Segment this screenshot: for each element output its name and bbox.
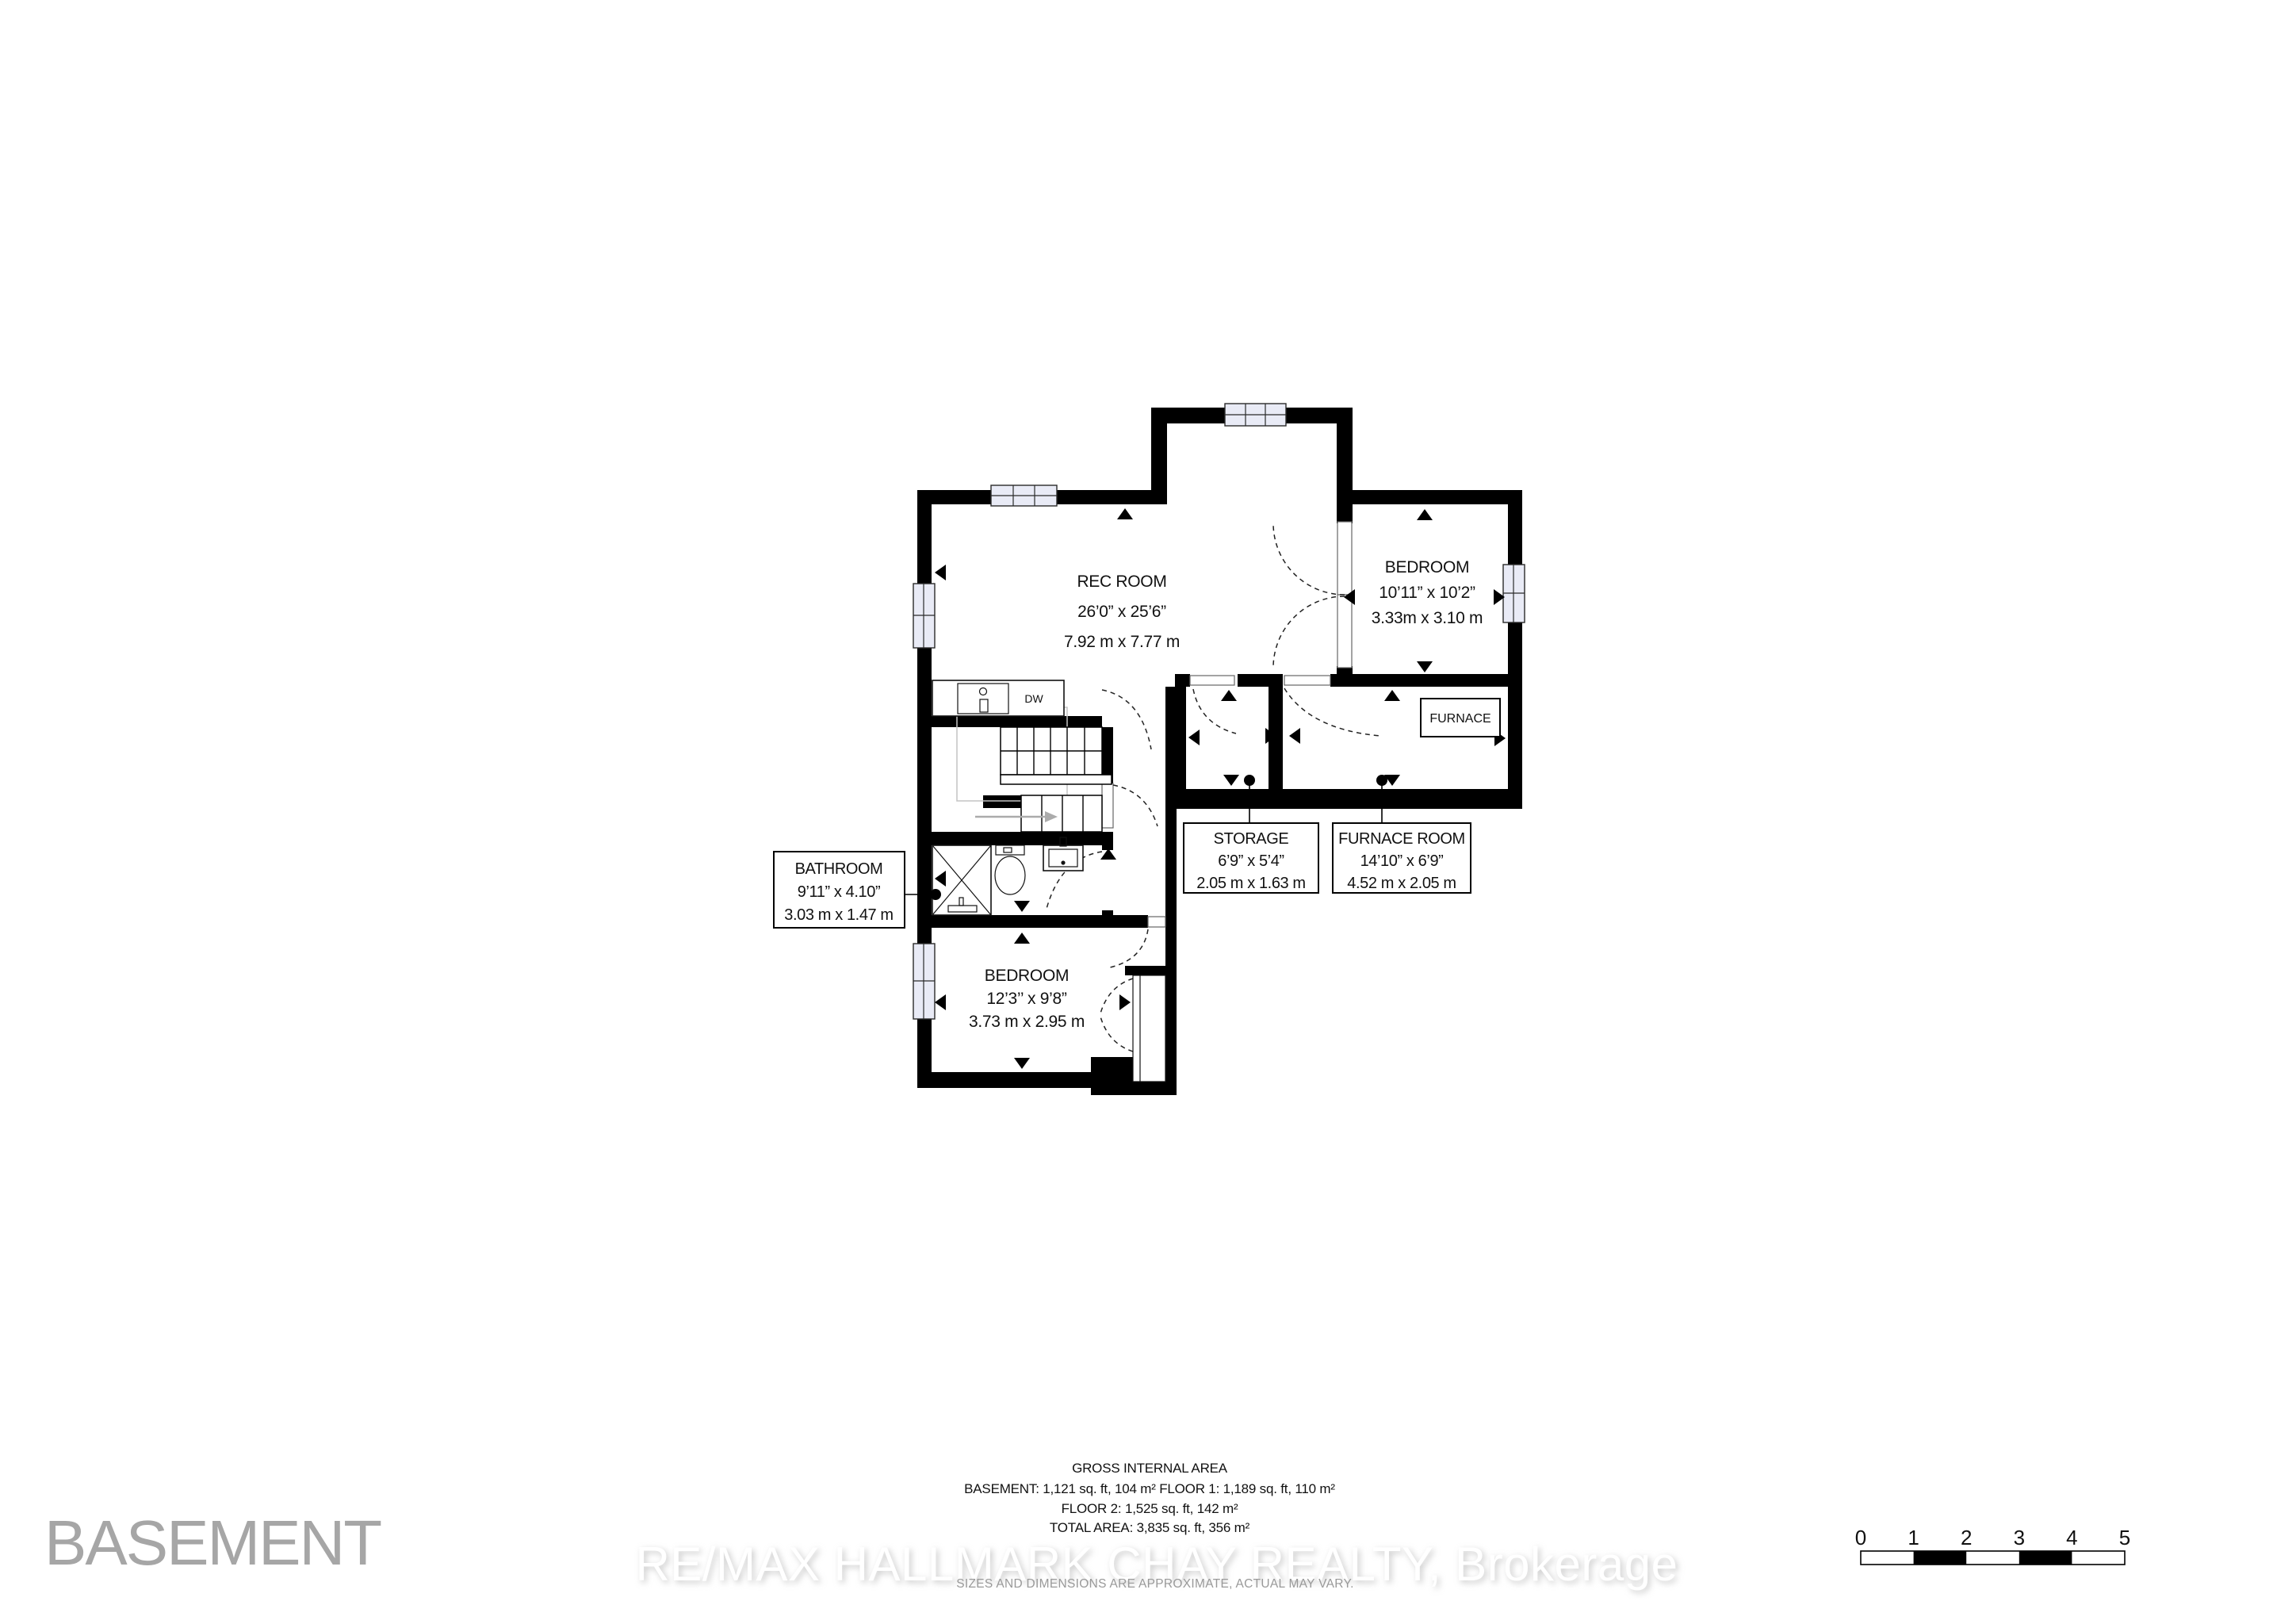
window-rec-left	[913, 584, 935, 648]
window-bedroom-upper-right	[1503, 565, 1525, 622]
arrow-storage-left	[1188, 730, 1200, 745]
label-boxes: FURNACE STORAGE 6’9” x 5’4” 2.05 m x 1.6…	[774, 699, 1500, 928]
wall-rec-bedroom-lower-seg	[1337, 666, 1353, 687]
furnace-door-leaf	[1284, 676, 1330, 685]
wall-bathroom-right-upper	[1102, 832, 1113, 850]
bathroom-dim-imperial: 9’11” x 4.10”	[798, 883, 881, 901]
arrow-bath-top	[1100, 848, 1116, 860]
wall-right-section-bottom	[1175, 789, 1522, 809]
wall-vestibule-right	[1337, 408, 1353, 523]
bedroom-lower-label: BEDROOM	[985, 967, 1069, 985]
arrow-bedl-left	[935, 994, 946, 1010]
wall-stairs-newel	[983, 795, 1021, 808]
arrow-bedl-top	[1014, 933, 1030, 944]
scale-bar-outline	[1861, 1551, 2125, 1565]
bathroom-dim-metric: 3.03 m x 1.47 m	[784, 906, 893, 924]
wall-storage-left	[1165, 687, 1186, 789]
disclaimer-text: SIZES AND DIMENSIONS ARE APPROXIMATE, AC…	[956, 1577, 1353, 1591]
wall-storage-top-a	[1175, 674, 1190, 687]
storage-dim-imperial: 6’9” x 5’4”	[1218, 852, 1284, 870]
bedroom-upper-label: BEDROOM	[1385, 558, 1469, 576]
area-summary-total: TOTAL AREA: 3,835 sq. ft, 356 m²	[1050, 1520, 1250, 1535]
stairs-landing	[1001, 775, 1112, 784]
scale-tick-5: 5	[2119, 1526, 2130, 1549]
scale-bar-segment-3-4	[2019, 1551, 2072, 1565]
wall-closet-top	[1125, 966, 1165, 975]
scale-bar: 0 1 2 3 4 5	[1855, 1526, 2130, 1565]
wall-bedroom-lower-top	[917, 915, 1148, 928]
wall-bedroom-lower-bottom	[917, 1072, 1091, 1088]
arrow-bedu-top	[1417, 509, 1433, 520]
arrow-storage-bottom	[1223, 775, 1239, 786]
arrow-bath-bottom	[1014, 901, 1030, 912]
bedroom-lower-door-leaf	[1148, 917, 1165, 927]
wall-bathroom-top	[917, 832, 1113, 845]
wall-corridor-right	[1165, 789, 1177, 1095]
bathroom-leader-dot	[930, 889, 941, 900]
rec-room-label: REC ROOM	[1077, 573, 1166, 591]
wall-right	[1508, 490, 1522, 809]
scale-tick-0: 0	[1855, 1526, 1866, 1549]
furnace-door-arc	[1284, 688, 1380, 736]
double-door-leaf-lower	[1337, 595, 1352, 668]
toilet	[995, 845, 1025, 894]
scale-tick-4: 4	[2066, 1526, 2077, 1549]
furnace-label-box: FURNACE	[1421, 699, 1500, 737]
rec-room-dim-imperial: 26’0” x 25’6”	[1077, 603, 1166, 621]
area-summary-heading: GROSS INTERNAL AREA	[1072, 1461, 1228, 1476]
storage-dim-metric: 2.05 m x 1.63 m	[1196, 875, 1305, 892]
scale-bar-segment-1-2	[1914, 1551, 1967, 1565]
closet-bifold-arc-upper	[1100, 979, 1133, 1013]
bedroom-upper-dim-metric: 3.33m x 3.10 m	[1372, 609, 1483, 627]
scale-tick-3: 3	[2014, 1526, 2025, 1549]
furnace-room-dim-imperial: 14’10” x 6’9”	[1360, 852, 1444, 870]
furnace-room-dim-metric: 4.52 m x 2.05 m	[1347, 875, 1456, 892]
arrow-furnace-door-left	[1289, 728, 1300, 744]
storage-label: STORAGE	[1214, 830, 1289, 848]
doors	[1047, 522, 1380, 1051]
area-summary-floor2: FLOOR 2: 1,525 sq. ft, 142 m²	[1062, 1501, 1238, 1516]
wall-kitchenette	[917, 716, 1102, 727]
bedroom-lower-door-arc	[1110, 929, 1148, 967]
window-bedroom-lower-left	[913, 944, 935, 1019]
double-door-arc-lower	[1273, 596, 1345, 668]
arrow-rec-left	[935, 565, 946, 580]
wall-top-right	[1337, 490, 1522, 504]
arrow-storage-top	[1221, 690, 1237, 701]
stairs-lower-flight	[1021, 795, 1102, 832]
closet-bifold-arc-lower	[1100, 1017, 1133, 1051]
landing-door-leaf	[1102, 783, 1113, 828]
wall-storage-top-b	[1238, 674, 1283, 687]
floorplan-page: DW	[0, 0, 2296, 1624]
landing-door-arc	[1113, 785, 1158, 826]
bathroom-label-box: BATHROOM 9’11” x 4.10” 3.03 m x 1.47 m	[774, 852, 941, 928]
storage-door-leaf	[1190, 676, 1234, 685]
arrow-bedl-right	[1119, 994, 1131, 1010]
kitchenette-counter: DW	[932, 680, 1064, 716]
storage-leader-dot	[1244, 775, 1255, 786]
double-door-leaf-upper	[1337, 522, 1352, 595]
bedroom-lower-dim-imperial: 12’3’’ x 9’8”	[986, 990, 1066, 1008]
area-summary-basement-floor1: BASEMENT: 1,121 sq. ft, 104 m² FLOOR 1: …	[964, 1481, 1335, 1496]
furnace-room-leader-dot	[1376, 775, 1387, 786]
bedroom-upper-dim-imperial: 10’11” x 10’2”	[1379, 584, 1475, 602]
footer: GROSS INTERNAL AREA BASEMENT: 1,121 sq. …	[44, 1461, 2130, 1593]
arrow-bedu-bottom	[1417, 661, 1433, 672]
area-summary: GROSS INTERNAL AREA BASEMENT: 1,121 sq. …	[964, 1461, 1335, 1535]
wall-vestibule-left	[1151, 408, 1167, 504]
floor-title: BASEMENT	[44, 1507, 381, 1578]
floor-plan-canvas: DW	[0, 0, 2296, 1624]
arrow-rec-top	[1117, 508, 1133, 519]
scale-tick-2: 2	[1961, 1526, 1972, 1549]
arrow-bedl-bottom	[1014, 1058, 1030, 1069]
double-door-arc-upper	[1273, 523, 1345, 595]
dishwasher-label: DW	[1024, 692, 1043, 705]
window-top-left	[991, 485, 1057, 506]
wall-closet-bottom	[1133, 1082, 1165, 1095]
closet	[1133, 975, 1165, 1082]
wall-bedroom-lower-step	[1091, 1057, 1133, 1095]
wall-bedroom-upper-bottom	[1330, 674, 1522, 687]
window-vestibule-top	[1225, 404, 1286, 426]
furnace-room-label: FURNACE ROOM	[1338, 830, 1465, 848]
bathroom-label: BATHROOM	[795, 860, 883, 878]
arrow-furnace-top	[1384, 690, 1400, 701]
scale-tick-1: 1	[1908, 1526, 1919, 1549]
rec-room-dim-metric: 7.92 m x 7.77 m	[1064, 633, 1180, 651]
furnace-label: FURNACE	[1429, 712, 1490, 726]
bedroom-lower-dim-metric: 3.73 m x 2.95 m	[969, 1013, 1085, 1031]
